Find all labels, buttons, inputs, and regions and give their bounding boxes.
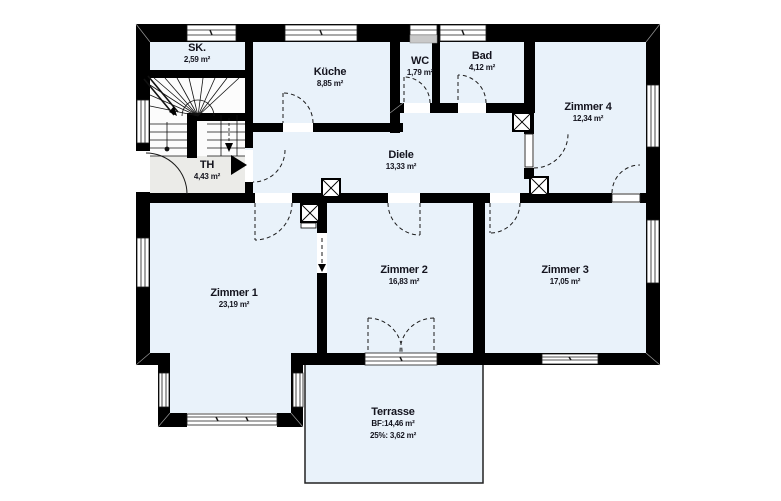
shaft-symbol <box>301 204 319 222</box>
bay-window-floor <box>170 365 291 413</box>
shaft-symbol <box>530 177 548 195</box>
floor-plan: SK. 2,59 m² Küche 8,85 m² WC 1,79 m² Bad… <box>0 0 781 501</box>
window <box>293 373 303 407</box>
window <box>285 25 357 41</box>
window-sill <box>410 35 437 43</box>
terrace-area <box>305 364 483 483</box>
window <box>187 414 277 425</box>
window <box>159 373 169 407</box>
window <box>187 25 236 41</box>
terrace-door-window <box>365 353 437 365</box>
window <box>647 220 659 283</box>
shaft-symbol <box>513 113 531 131</box>
shaft-sill <box>301 223 316 228</box>
window <box>137 238 149 287</box>
floor-plan-drawing <box>0 0 781 501</box>
entrance-opening <box>136 151 150 192</box>
stair-wall-vertical <box>187 113 197 158</box>
window <box>647 85 659 147</box>
walkline-start-dot <box>165 147 170 152</box>
door-leaf <box>525 134 533 167</box>
door-leaf <box>612 194 640 202</box>
shaft-symbol <box>322 179 340 197</box>
window <box>542 354 598 364</box>
window <box>137 100 149 143</box>
window <box>440 25 486 41</box>
